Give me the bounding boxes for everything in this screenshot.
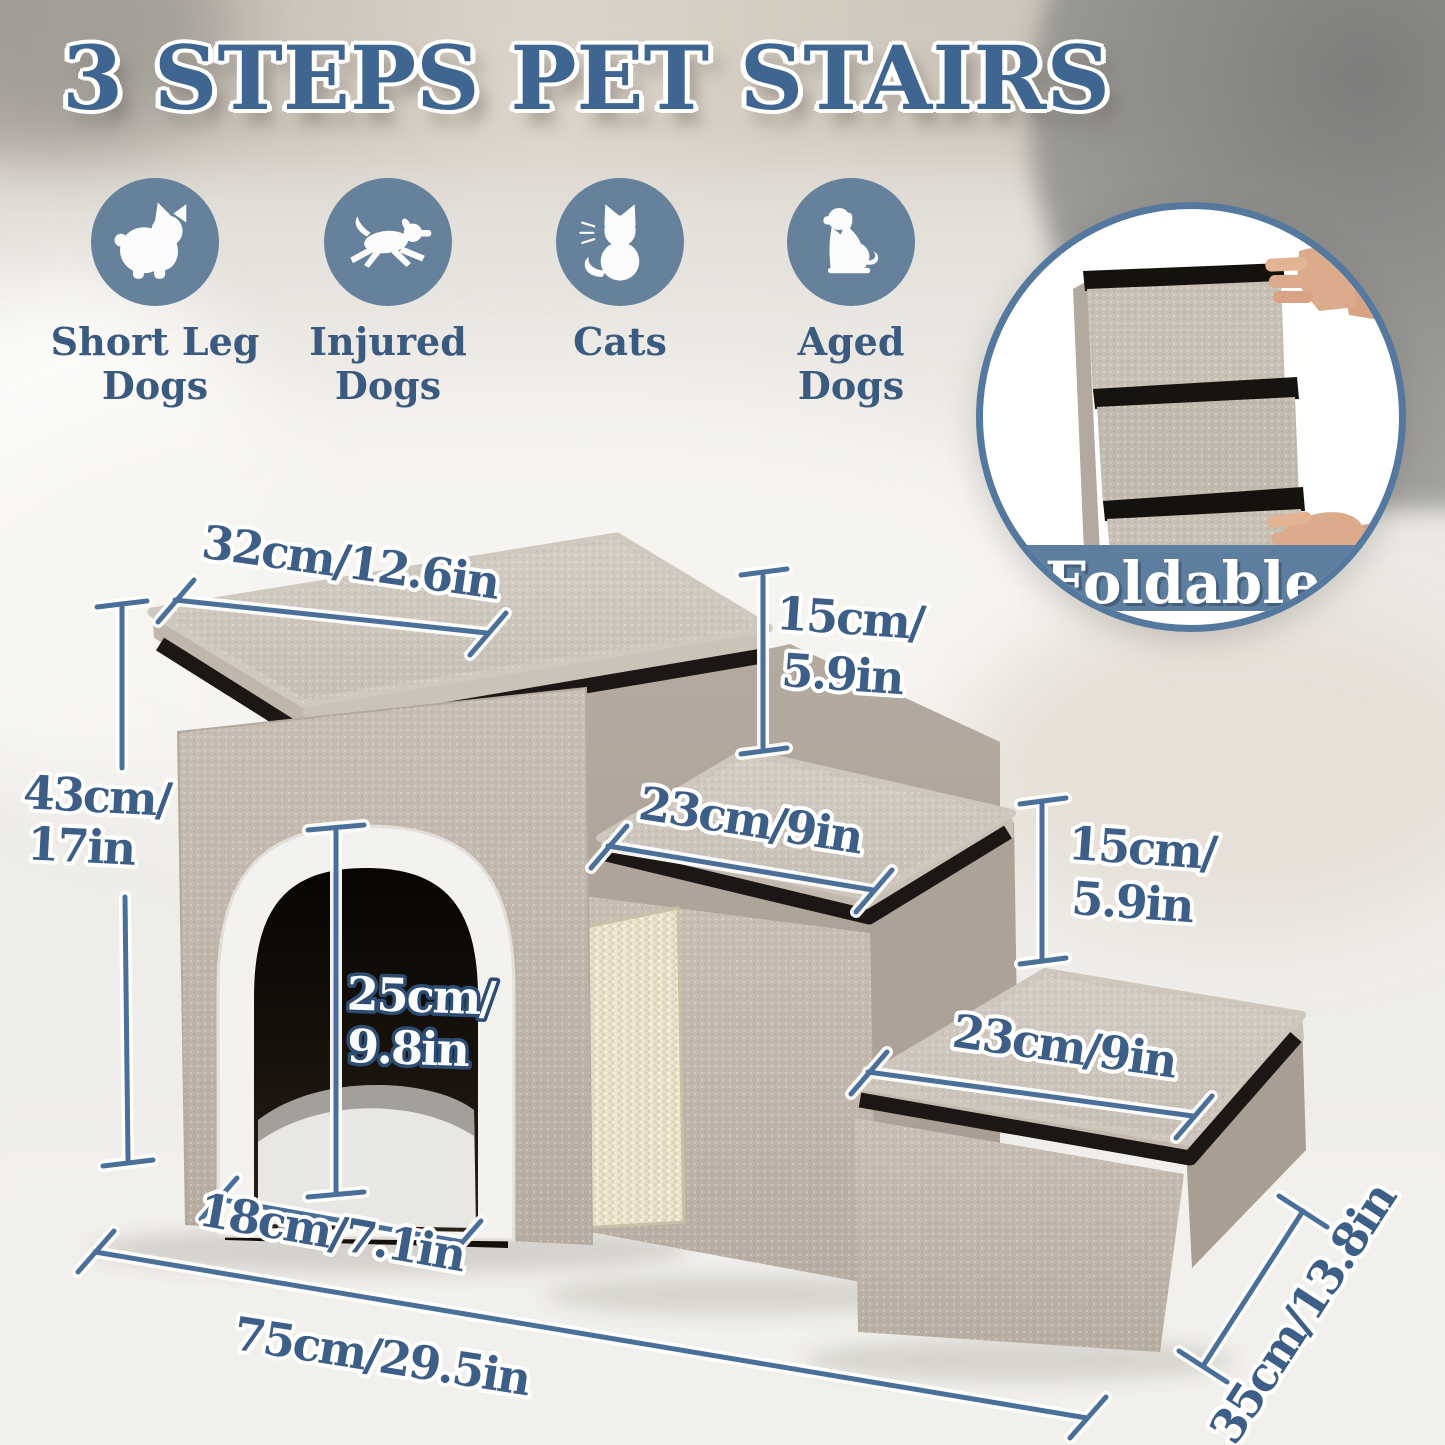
- audience-item-cats: Cats: [500, 178, 740, 364]
- audience-label: Short LegDogs: [35, 320, 275, 408]
- dim-riser2-line2: 5.9in: [1070, 871, 1196, 933]
- audience-item-injured-dogs: InjuredDogs: [268, 178, 508, 408]
- dim-riser1-line2: 5.9in: [780, 643, 906, 705]
- icon-circle: [324, 178, 452, 306]
- audience-label: InjuredDogs: [268, 320, 508, 408]
- icon-circle: [91, 178, 219, 306]
- audience-label: Cats: [500, 320, 740, 364]
- audience-item-aged-dogs: AgedDogs: [731, 178, 971, 408]
- cat-icon: [574, 196, 666, 288]
- page-title: 3 STEPS PET STAIRS: [62, 26, 1062, 130]
- dim-door-height-line1: 25cm/: [346, 966, 497, 1025]
- dim-total-height-line2: 17in: [26, 816, 137, 876]
- injured-dog-icon: [342, 196, 434, 288]
- product-infographic: 3 STEPS PET STAIRS Short LegDogs: [0, 0, 1445, 1445]
- short-leg-dog-icon: [109, 196, 201, 288]
- audience-label: AgedDogs: [731, 320, 971, 408]
- dim-riser2-line1: 15cm/: [1067, 816, 1220, 880]
- icon-circle: [556, 178, 684, 306]
- aged-dog-icon: [805, 196, 897, 288]
- dim-door-height-line2: 9.8in: [346, 1019, 470, 1077]
- audience-item-short-leg-dogs: Short LegDogs: [35, 178, 275, 408]
- dim-riser1-line1: 15cm/: [775, 586, 928, 650]
- icon-circle: [787, 178, 915, 306]
